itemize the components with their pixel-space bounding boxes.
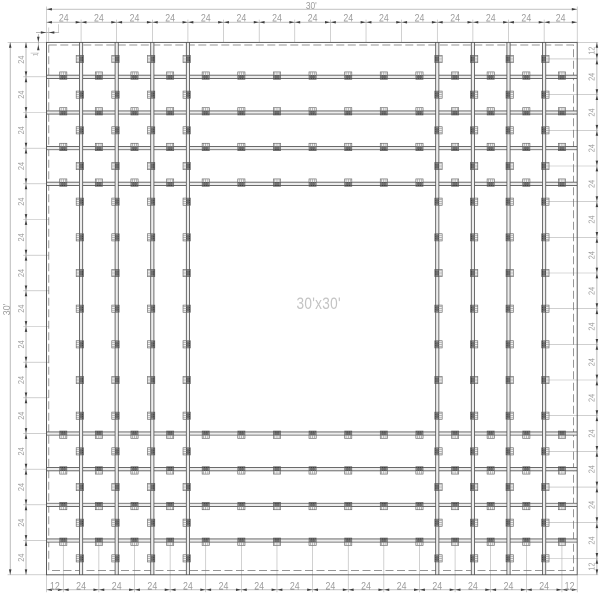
- svg-text:24: 24: [16, 161, 25, 170]
- svg-text:12: 12: [587, 562, 596, 570]
- svg-text:24: 24: [219, 580, 229, 592]
- svg-text:24: 24: [16, 126, 25, 135]
- svg-text:30'x30': 30'x30': [296, 294, 340, 313]
- svg-text:24: 24: [290, 580, 300, 592]
- svg-text:24: 24: [587, 72, 596, 81]
- svg-text:1: 1: [32, 52, 39, 56]
- svg-text:24: 24: [504, 580, 514, 592]
- svg-text:24: 24: [379, 13, 389, 25]
- svg-text:24: 24: [415, 13, 425, 25]
- svg-text:24: 24: [587, 500, 596, 509]
- svg-text:24: 24: [587, 179, 596, 188]
- svg-text:24: 24: [587, 250, 596, 259]
- svg-text:24: 24: [587, 357, 596, 366]
- svg-text:24: 24: [16, 55, 25, 64]
- svg-text:24: 24: [432, 580, 442, 592]
- svg-text:24: 24: [587, 286, 596, 295]
- svg-text:24: 24: [201, 13, 211, 25]
- svg-text:24: 24: [16, 268, 25, 277]
- svg-text:24: 24: [16, 90, 25, 99]
- svg-text:24: 24: [147, 580, 157, 592]
- svg-text:30': 30': [2, 303, 14, 315]
- svg-text:24: 24: [16, 553, 25, 562]
- svg-text:24: 24: [343, 13, 353, 25]
- svg-text:24: 24: [16, 482, 25, 491]
- svg-text:24: 24: [450, 13, 460, 25]
- svg-text:24: 24: [76, 580, 86, 592]
- svg-text:24: 24: [16, 447, 25, 456]
- svg-text:24: 24: [556, 13, 566, 25]
- svg-text:24: 24: [16, 197, 25, 206]
- svg-text:24: 24: [326, 580, 336, 592]
- svg-text:24: 24: [587, 322, 596, 331]
- svg-text:24: 24: [587, 215, 596, 224]
- svg-text:24: 24: [397, 580, 407, 592]
- svg-text:24: 24: [183, 580, 193, 592]
- svg-text:24: 24: [468, 580, 478, 592]
- svg-text:24: 24: [165, 13, 175, 25]
- svg-text:24: 24: [308, 13, 318, 25]
- svg-text:24: 24: [587, 393, 596, 402]
- svg-text:24: 24: [59, 13, 69, 25]
- svg-text:12: 12: [587, 47, 596, 55]
- svg-text:24: 24: [254, 580, 264, 592]
- svg-text:24: 24: [16, 233, 25, 242]
- svg-text:12: 12: [565, 580, 575, 592]
- svg-text:24: 24: [16, 304, 25, 313]
- svg-text:24: 24: [130, 13, 140, 25]
- svg-text:24: 24: [94, 13, 104, 25]
- svg-text:24: 24: [272, 13, 282, 25]
- svg-text:24: 24: [587, 536, 596, 545]
- svg-text:24: 24: [236, 13, 246, 25]
- svg-text:12: 12: [50, 580, 60, 592]
- svg-text:24: 24: [521, 13, 531, 25]
- svg-text:24: 24: [16, 518, 25, 527]
- svg-text:24: 24: [587, 108, 596, 117]
- svg-text:24: 24: [16, 340, 25, 349]
- svg-text:24: 24: [587, 429, 596, 438]
- svg-text:24: 24: [539, 580, 549, 592]
- svg-text:24: 24: [16, 375, 25, 384]
- svg-text:24: 24: [16, 411, 25, 420]
- svg-text:24: 24: [112, 580, 122, 592]
- svg-text:30': 30': [306, 0, 317, 12]
- svg-text:24: 24: [587, 143, 596, 152]
- svg-text:24: 24: [486, 13, 496, 25]
- svg-text:24: 24: [587, 464, 596, 473]
- svg-text:24: 24: [361, 580, 371, 592]
